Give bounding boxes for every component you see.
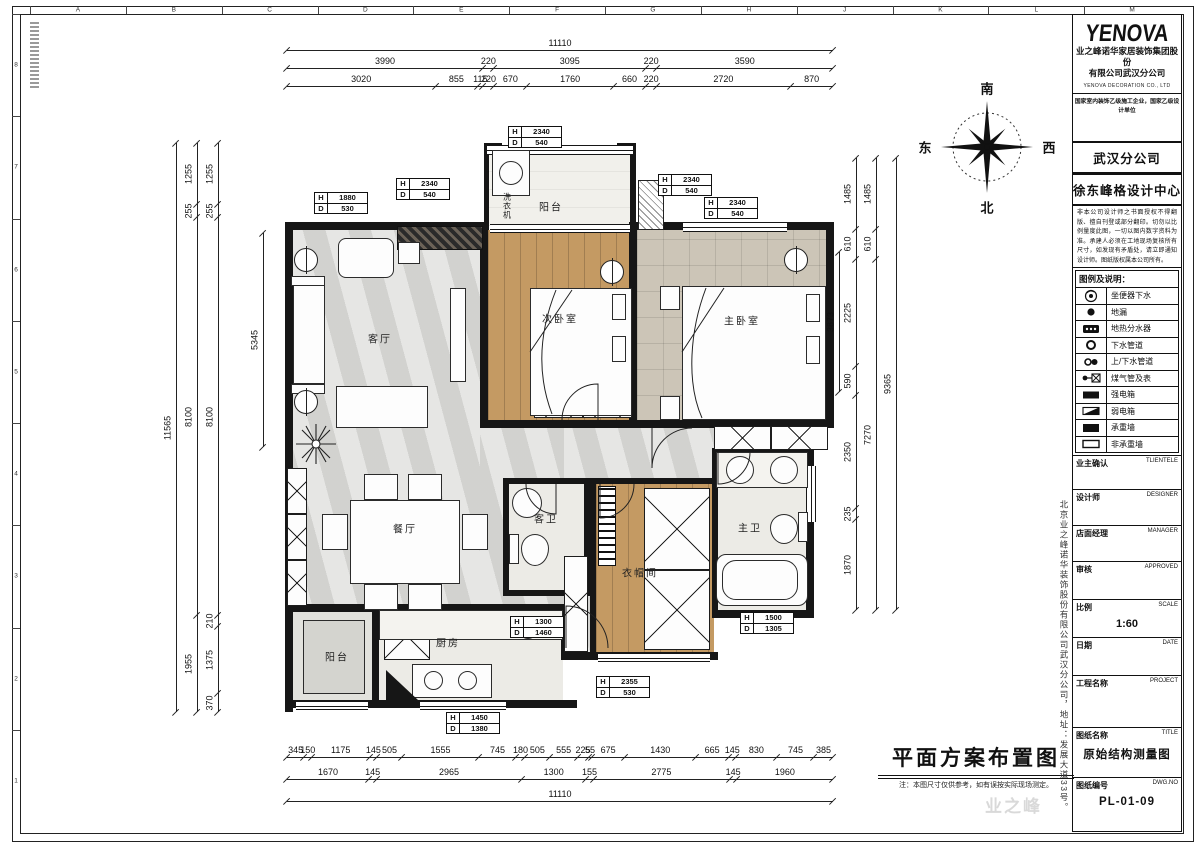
drain-pipe-icon	[1076, 338, 1107, 354]
legend-row-heating-manifold: 地热分水器	[1076, 321, 1178, 338]
bearing-wall-icon	[1076, 420, 1107, 436]
room-label-balcony-bottom: 阳台	[325, 649, 349, 664]
field-designer-en: DESIGNER	[1147, 492, 1178, 503]
dimension-value: 1375	[205, 650, 216, 670]
room-label-bed2: 次卧室	[542, 311, 578, 326]
dimension-line	[287, 50, 833, 51]
room-label-washer: 洗衣机	[502, 193, 513, 220]
company-name-english: YENOVA DECORATION CO., LTD	[1073, 83, 1181, 89]
field-drawing-title-value: 原始结构测量图	[1073, 746, 1181, 762]
room-label-living: 客厅	[368, 331, 392, 346]
dimension-line	[896, 158, 897, 610]
dimension-value: 2775	[651, 767, 671, 778]
dimension-line	[287, 86, 833, 87]
field-project-en: PROJECT	[1150, 678, 1178, 689]
dimension-value: 1255	[184, 164, 195, 184]
legend-row-bearing-wall: 承重墙	[1076, 420, 1178, 437]
legend-row-strong-power-box: 强电箱	[1076, 387, 1178, 404]
dimension-value: 145	[726, 767, 741, 778]
legend-row-floor-drain: 地漏	[1076, 305, 1178, 322]
dimension-value: 3020	[351, 74, 371, 85]
dimension-value: 1670	[318, 767, 338, 778]
dimension-value: 665	[705, 745, 720, 756]
dimension-value: 1430	[650, 745, 670, 756]
plant-icon	[296, 424, 336, 464]
field-manager-label: 店面经理	[1076, 528, 1108, 539]
room-label-balcony-top: 阳台	[539, 199, 563, 214]
strong-power-box-icon	[1076, 387, 1107, 403]
heating-manifold-icon	[1076, 321, 1107, 337]
dimension-line	[197, 143, 198, 712]
drawing-note: 注：本图尺寸仅供参考，如有误按实际现场测定。	[878, 780, 1074, 790]
legend-label: 坐便器下水	[1107, 290, 1151, 301]
room-label-bath-guest: 客卫	[534, 511, 558, 526]
dimension-value: 2720	[713, 74, 733, 85]
compass-rose-icon	[932, 92, 1042, 202]
door-arc-guest-bath	[526, 484, 556, 514]
field-drawing-title-label: 图纸名称	[1076, 730, 1108, 741]
field-manager-en: MANAGER	[1148, 528, 1178, 539]
gas-meter-icon	[1076, 371, 1107, 387]
weak-power-box-icon	[1076, 404, 1107, 420]
window-tag: H1300 D1460	[510, 616, 564, 638]
dimension-value: 1485	[863, 184, 874, 204]
door-arc-cloak	[600, 484, 634, 518]
legend-label: 弱电箱	[1107, 406, 1135, 417]
dimension-value: 3873	[826, 312, 837, 332]
field-drawing-number-label: 图纸编号	[1076, 780, 1108, 791]
dimension-value: 670	[503, 74, 518, 85]
dimension-value: 7270	[863, 425, 874, 445]
legend-row-non-bearing-wall: 非承重墙	[1076, 437, 1178, 453]
field-scale-en: SCALE	[1158, 602, 1178, 613]
dimension-value: 2350	[843, 442, 854, 462]
dimension-value: 145	[366, 745, 381, 756]
legend-title: 图例及说明：	[1076, 271, 1178, 288]
bed2-blanket-lines	[530, 290, 572, 414]
window-tag: H2340 D540	[658, 174, 712, 196]
dimension-line	[287, 801, 833, 802]
dimension-value: 220	[481, 74, 496, 85]
master-blanket-lines	[682, 288, 724, 418]
field-drawing-number: 图纸编号DWG.NO PL-01-09	[1073, 777, 1181, 831]
dimension-value: 255	[205, 203, 216, 218]
dimension-value: 675	[601, 745, 616, 756]
dimension-value: 370	[205, 695, 216, 710]
non-bearing-wall-icon	[1076, 437, 1107, 453]
dimension-value: 2225	[843, 303, 854, 323]
room-label-dining: 餐厅	[393, 521, 417, 536]
dimension-value: 610	[843, 237, 854, 252]
toilet-drain-icon	[1076, 288, 1107, 304]
dimension-value: 385	[816, 745, 831, 756]
compass-east-label: 东	[918, 138, 931, 157]
drawing-main-title: 平面方案布置图	[878, 742, 1074, 779]
legend-row-drain-pipe: 下水管道	[1076, 338, 1178, 355]
field-drawing-title: 图纸名称TITLE 原始结构测量图	[1073, 727, 1181, 777]
watermark-text: 业之峰	[985, 792, 1042, 817]
company-certification: 国家室内装饰乙级施工企业，国家乙级设计单位	[1073, 93, 1181, 114]
dimension-value: 145	[725, 745, 740, 756]
field-approved: 审核APPROVED	[1073, 561, 1181, 599]
legend-label: 非承重墙	[1107, 439, 1143, 450]
legend-row-gas-meter: 煤气管及表	[1076, 371, 1178, 388]
window-tag: H2340 D540	[396, 178, 450, 200]
dimension-value: 660	[622, 74, 637, 85]
field-client-confirm-en: TLIENTELE	[1146, 458, 1178, 469]
compass-south-label: 南	[980, 79, 993, 98]
drawing-sheet: ABCDEFGHJKLM87654321 客厅 餐厅 次卧室 主卧室 阳台 阳台…	[0, 0, 1200, 848]
legend-row-water-pipes: 上/下水管道	[1076, 354, 1178, 371]
company-name-line1: 业之峰诺华家居装饰集团股份	[1073, 46, 1181, 68]
room-label-kitchen: 厨房	[436, 635, 460, 650]
field-project: 工程名称PROJECT	[1073, 675, 1181, 727]
window-tag: H1450 D1380	[446, 712, 500, 734]
kitchen-corner-cabinet	[386, 670, 418, 700]
compass	[932, 92, 1042, 202]
dimension-value: 1300	[544, 767, 564, 778]
field-approved-label: 审核	[1076, 564, 1092, 575]
field-client-confirm-label: 业主确认	[1076, 458, 1108, 469]
dimension-value: 830	[749, 745, 764, 756]
door-arc-entry	[566, 606, 608, 648]
dimension-value: 505	[530, 745, 545, 756]
door-arc-master	[652, 428, 692, 468]
field-date-en: DATE	[1162, 640, 1178, 651]
dimension-value: 1255	[205, 164, 216, 184]
window-tag: H2340 D540	[704, 197, 758, 219]
field-date-label: 日期	[1076, 640, 1092, 651]
dimension-value: 1485	[843, 184, 854, 204]
design-center-name: 徐东峰格设计中心	[1073, 173, 1181, 205]
dimension-value: 1870	[843, 555, 854, 575]
field-drawing-number-en: DWG.NO	[1153, 780, 1178, 791]
door-arc-master-bath	[718, 452, 750, 484]
field-client-confirm: 业主确认TLIENTELE	[1073, 455, 1181, 489]
dimension-value: 555	[556, 745, 571, 756]
dimension-value: 255	[184, 203, 195, 218]
field-designer: 设计师DESIGNER	[1073, 489, 1181, 525]
dimension-value: 3990	[375, 56, 395, 67]
legend-label: 承重墙	[1107, 422, 1135, 433]
floor-drain-icon	[1076, 305, 1107, 321]
legend-label: 地漏	[1107, 307, 1127, 318]
compass-west-label: 西	[1042, 138, 1055, 157]
field-drawing-number-value: PL-01-09	[1073, 796, 1181, 808]
legend-body: 坐便器下水 地漏 地热分水器 下水	[1076, 288, 1178, 452]
company-logo: YENOVA	[1073, 21, 1181, 49]
dimension-value: 145	[365, 767, 380, 778]
dimension-value: 11110	[548, 789, 571, 800]
dimension-value: 3590	[735, 56, 755, 67]
field-scale: 比例SCALE 1:60	[1073, 599, 1181, 637]
dimension-value: 610	[863, 237, 874, 252]
dimension-line	[839, 252, 840, 392]
dimension-value: 11110	[548, 38, 571, 49]
dimension-value: 210	[205, 613, 216, 628]
dimension-value: 2965	[439, 767, 459, 778]
legend-label: 煤气管及表	[1107, 373, 1151, 384]
field-manager: 店面经理MANAGER	[1073, 525, 1181, 561]
field-drawing-title-en: TITLE	[1162, 730, 1178, 741]
legend-row-weak-power-box: 弱电箱	[1076, 404, 1178, 421]
legend-label: 下水管道	[1107, 340, 1143, 351]
legend-row-toilet-drain: 坐便器下水	[1076, 288, 1178, 305]
dimension-value: 220	[644, 56, 659, 67]
field-project-label: 工程名称	[1076, 678, 1108, 689]
dimension-value: 8100	[205, 407, 216, 427]
dimension-value: 855	[449, 74, 464, 85]
copyright-disclaimer: 非本公司设计师之书面授权不得翻版、擅自刊登或部分翻印。切勿以比例量度此图，一切以…	[1073, 205, 1181, 267]
company-name-line2: 有限公司武汉分公司	[1073, 68, 1181, 79]
dimension-line	[176, 143, 177, 712]
window-tag: H1500 D1305	[740, 612, 794, 634]
field-date: 日期DATE	[1073, 637, 1181, 675]
dimension-value: 155	[582, 767, 597, 778]
dimension-value: 505	[382, 745, 397, 756]
legend-label: 强电箱	[1107, 389, 1135, 400]
field-designer-label: 设计师	[1076, 492, 1100, 503]
room-label-bath-master: 主卫	[738, 520, 762, 535]
company-address-vertical-text: 北京业之峰诺华装饰股份有限公司武汉分公司，地址：发展大道33号。	[1058, 500, 1070, 840]
dimension-value: 180	[513, 745, 528, 756]
field-scale-label: 比例	[1076, 602, 1092, 613]
dimension-value: 55	[585, 745, 595, 756]
door-arc-bed2	[562, 384, 598, 420]
dimension-value: 5345	[250, 330, 261, 350]
dimension-value: 590	[843, 373, 854, 388]
window-tag: H2355 D530	[596, 676, 650, 698]
dimension-line	[263, 233, 264, 447]
dimension-value: 1175	[331, 745, 350, 756]
title-block: YENOVA 业之峰诺华家居装饰集团股份 有限公司武汉分公司 YENOVA DE…	[1072, 14, 1182, 832]
dimension-value: 9365	[883, 374, 894, 394]
dimension-value: 220	[644, 74, 659, 85]
field-scale-value: 1:60	[1073, 618, 1181, 630]
room-label-master: 主卧室	[724, 313, 760, 328]
room-label-cloak: 衣帽间	[622, 565, 658, 580]
compass-north-label: 北	[980, 198, 993, 217]
dimension-value: 235	[843, 507, 854, 522]
dimension-value: 745	[490, 745, 505, 756]
dimension-value: 1955	[184, 654, 195, 674]
water-pipes-icon	[1076, 354, 1107, 370]
legend-section: 图例及说明： 坐便器下水 地漏	[1073, 267, 1181, 455]
dimension-value: 1960	[775, 767, 795, 778]
window-tag: H1880 D530	[314, 192, 368, 214]
dimension-value: 220	[481, 56, 496, 67]
dimension-value: 870	[804, 74, 819, 85]
dimension-line	[287, 68, 833, 69]
dimension-value: 3095	[560, 56, 580, 67]
dimension-value: 745	[788, 745, 803, 756]
legend-label: 上/下水管道	[1107, 356, 1153, 367]
company-header: YENOVA 业之峰诺华家居装饰集团股份 有限公司武汉分公司 YENOVA DE…	[1073, 15, 1181, 141]
dimension-value: 1555	[430, 745, 450, 756]
dimension-value: 11565	[163, 415, 174, 439]
window-tag: H2340 D540	[508, 126, 562, 148]
field-approved-en: APPROVED	[1145, 564, 1178, 575]
branch-name: 武汉分公司	[1073, 141, 1181, 173]
dimension-value: 150	[300, 745, 315, 756]
dimension-value: 1760	[560, 74, 580, 85]
dimension-value: 8100	[184, 407, 195, 427]
legend-label: 地热分水器	[1107, 323, 1151, 334]
